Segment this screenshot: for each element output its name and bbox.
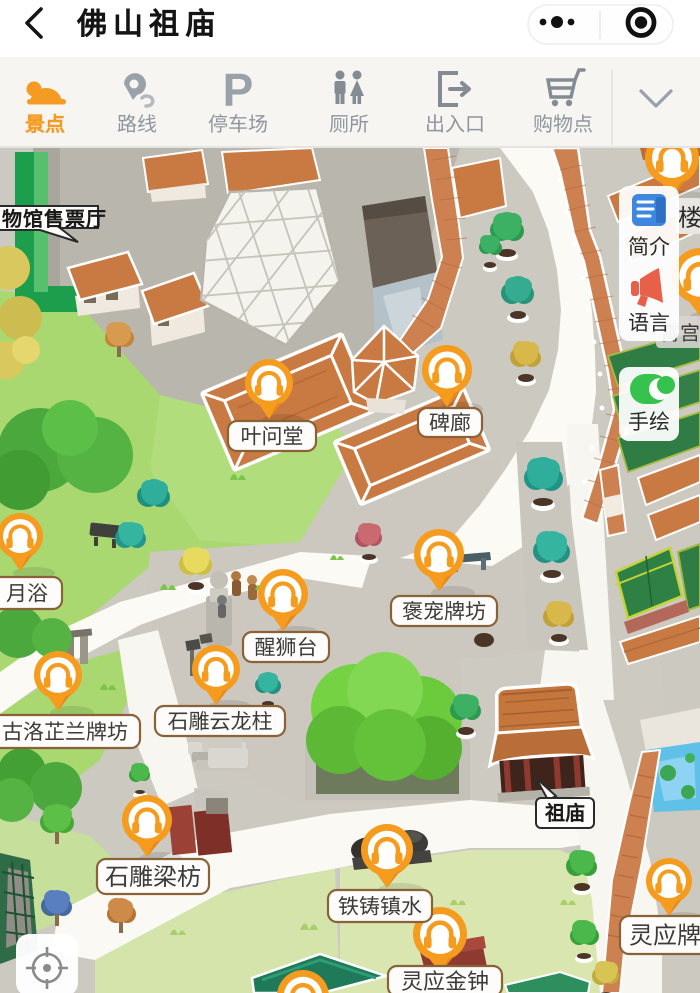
svg-text:P: P (223, 64, 254, 116)
